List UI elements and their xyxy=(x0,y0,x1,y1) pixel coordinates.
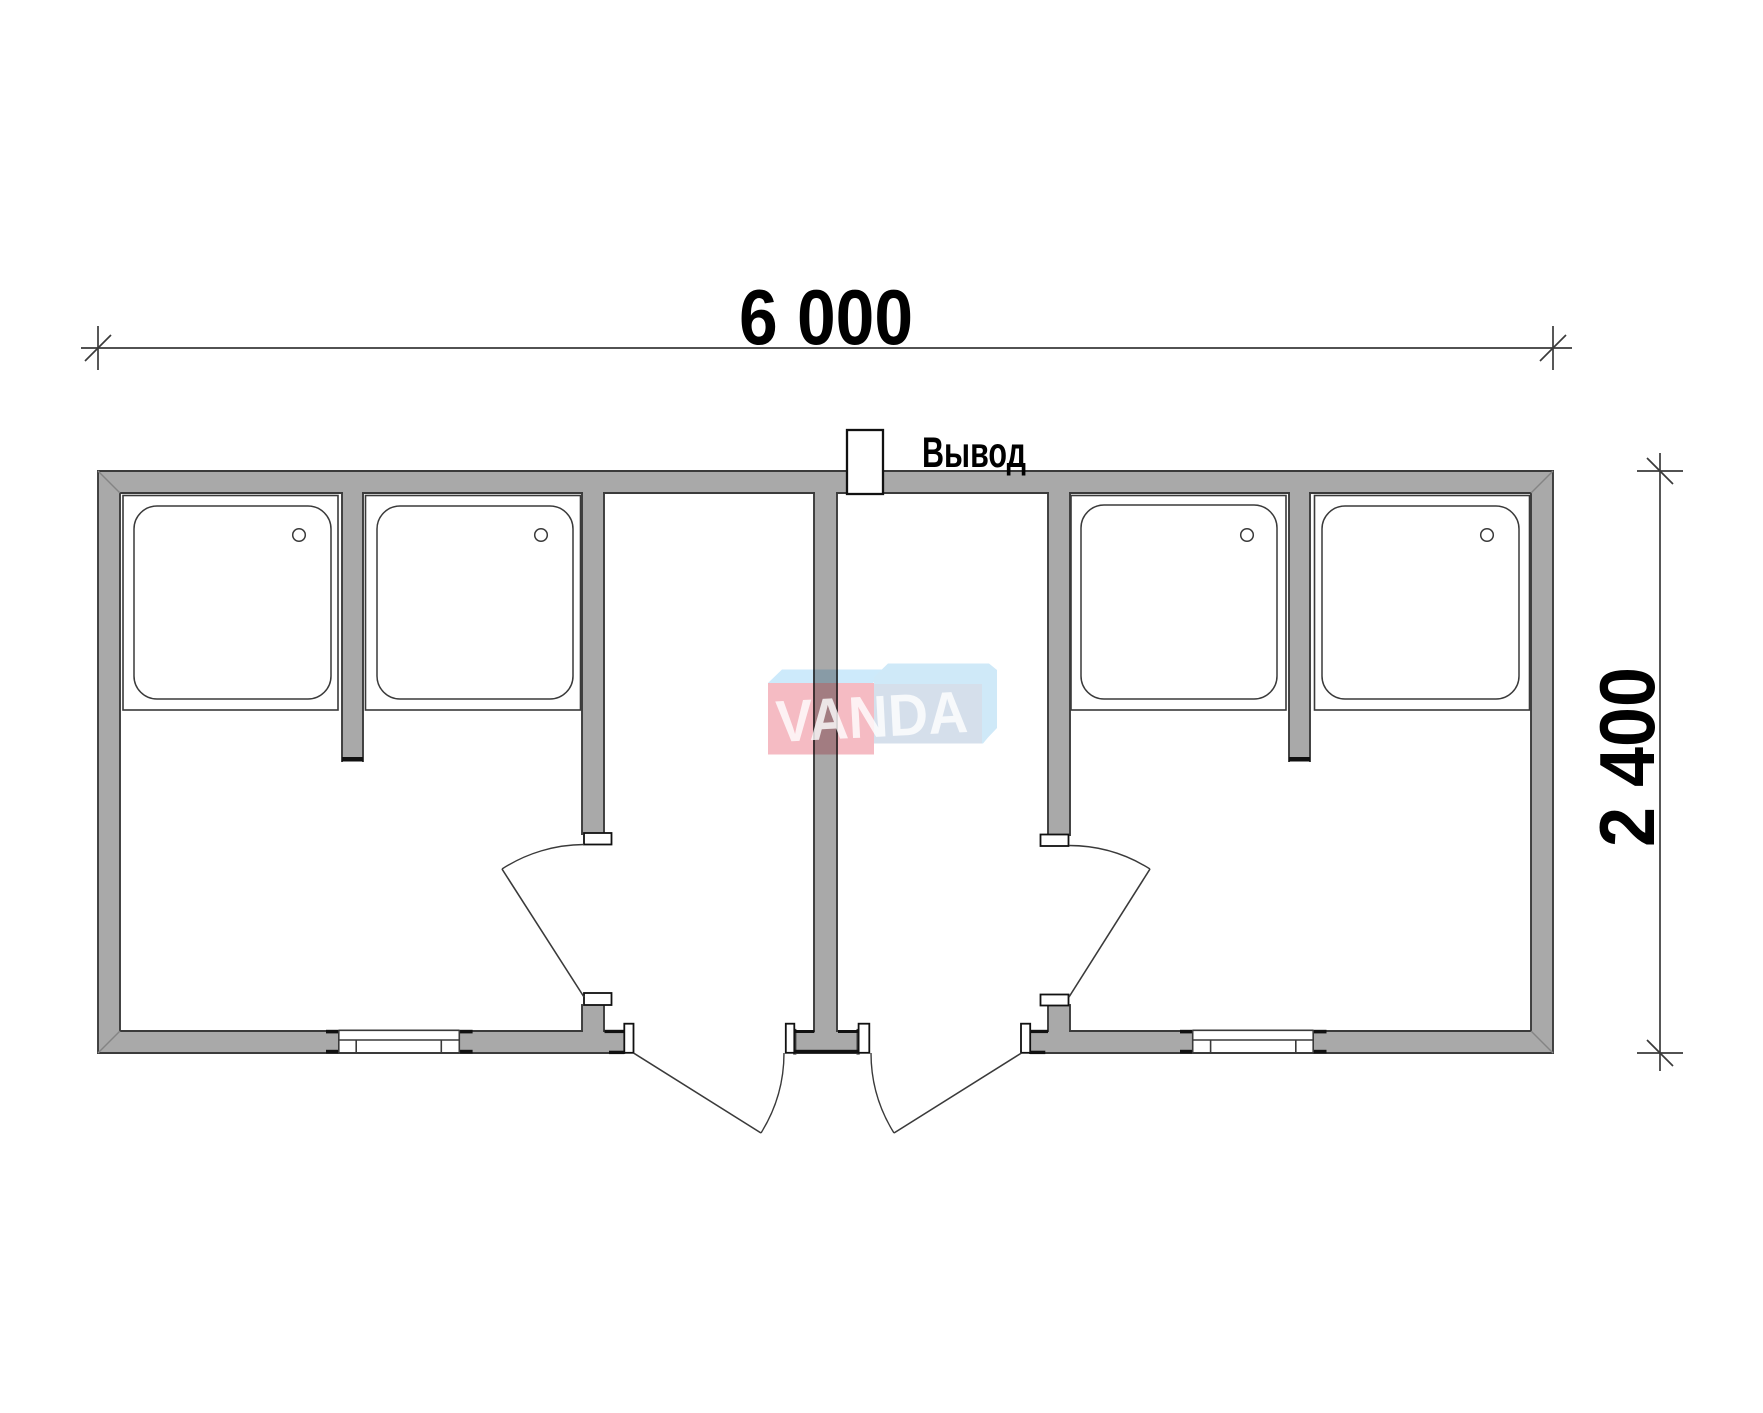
svg-text:2 400: 2 400 xyxy=(1583,667,1671,847)
svg-text:Вывод: Вывод xyxy=(922,429,1026,477)
svg-text:6 000: 6 000 xyxy=(739,273,913,361)
svg-text:VANDA: VANDA xyxy=(774,679,969,755)
